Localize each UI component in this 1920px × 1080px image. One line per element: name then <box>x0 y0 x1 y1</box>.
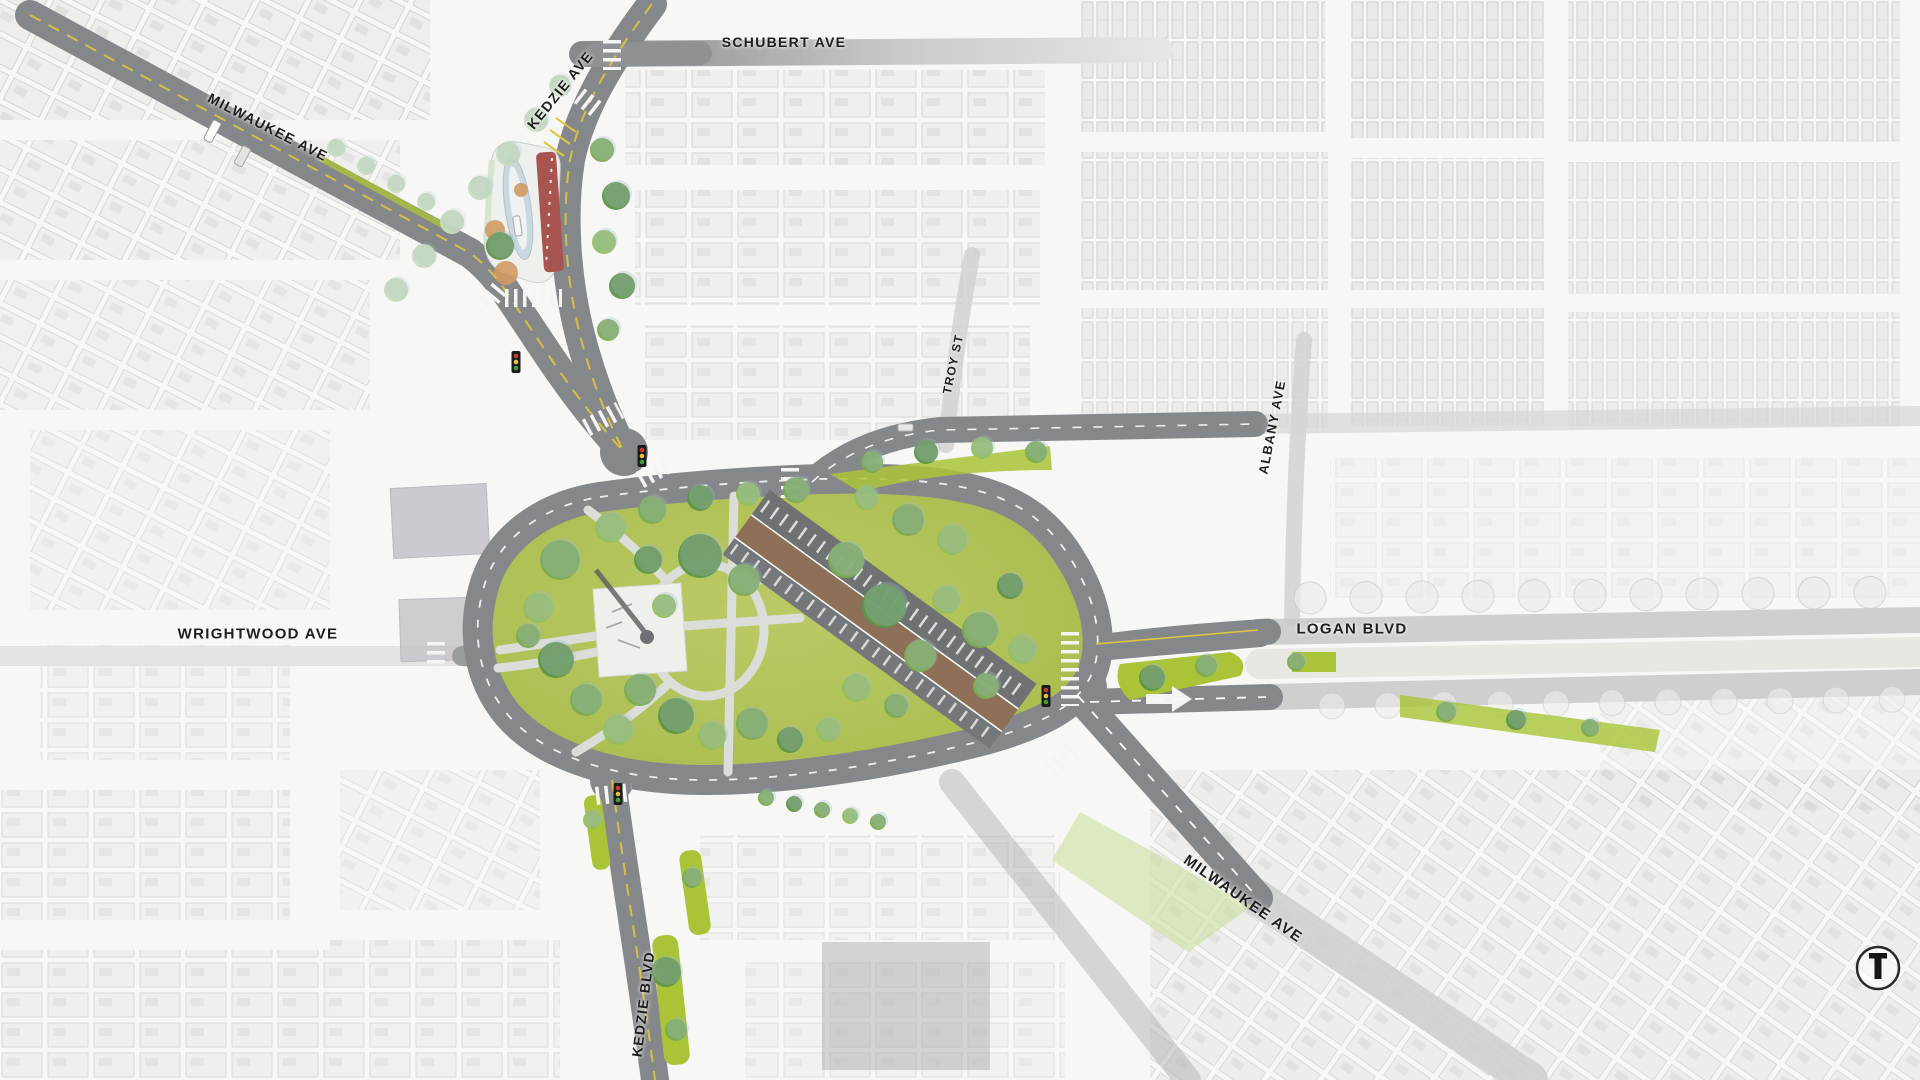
street-label-schubert-ave: SCHUBERT AVE <box>722 34 847 50</box>
traffic-signal-icon <box>614 783 623 805</box>
planter <box>494 261 518 285</box>
north-arrow-icon <box>1857 947 1899 989</box>
monument-plaza <box>593 570 687 677</box>
site-plan-svg <box>0 0 1920 1080</box>
site-plan-canvas: SCHUBERT AVE KEDZIE AVE MILWAUKEE AVE TR… <box>0 0 1920 1080</box>
traffic-signal-icon <box>638 445 647 467</box>
traffic-signal-icon <box>1042 685 1051 707</box>
street-label-logan-blvd: LOGAN BLVD <box>1296 621 1407 638</box>
traffic-signal-icon <box>512 351 521 373</box>
planter <box>514 183 528 197</box>
monument-column <box>640 630 654 644</box>
transit-plaza-island <box>484 142 564 285</box>
street-label-wrightwood-ave: WRIGHTWOOD AVE <box>178 626 339 643</box>
